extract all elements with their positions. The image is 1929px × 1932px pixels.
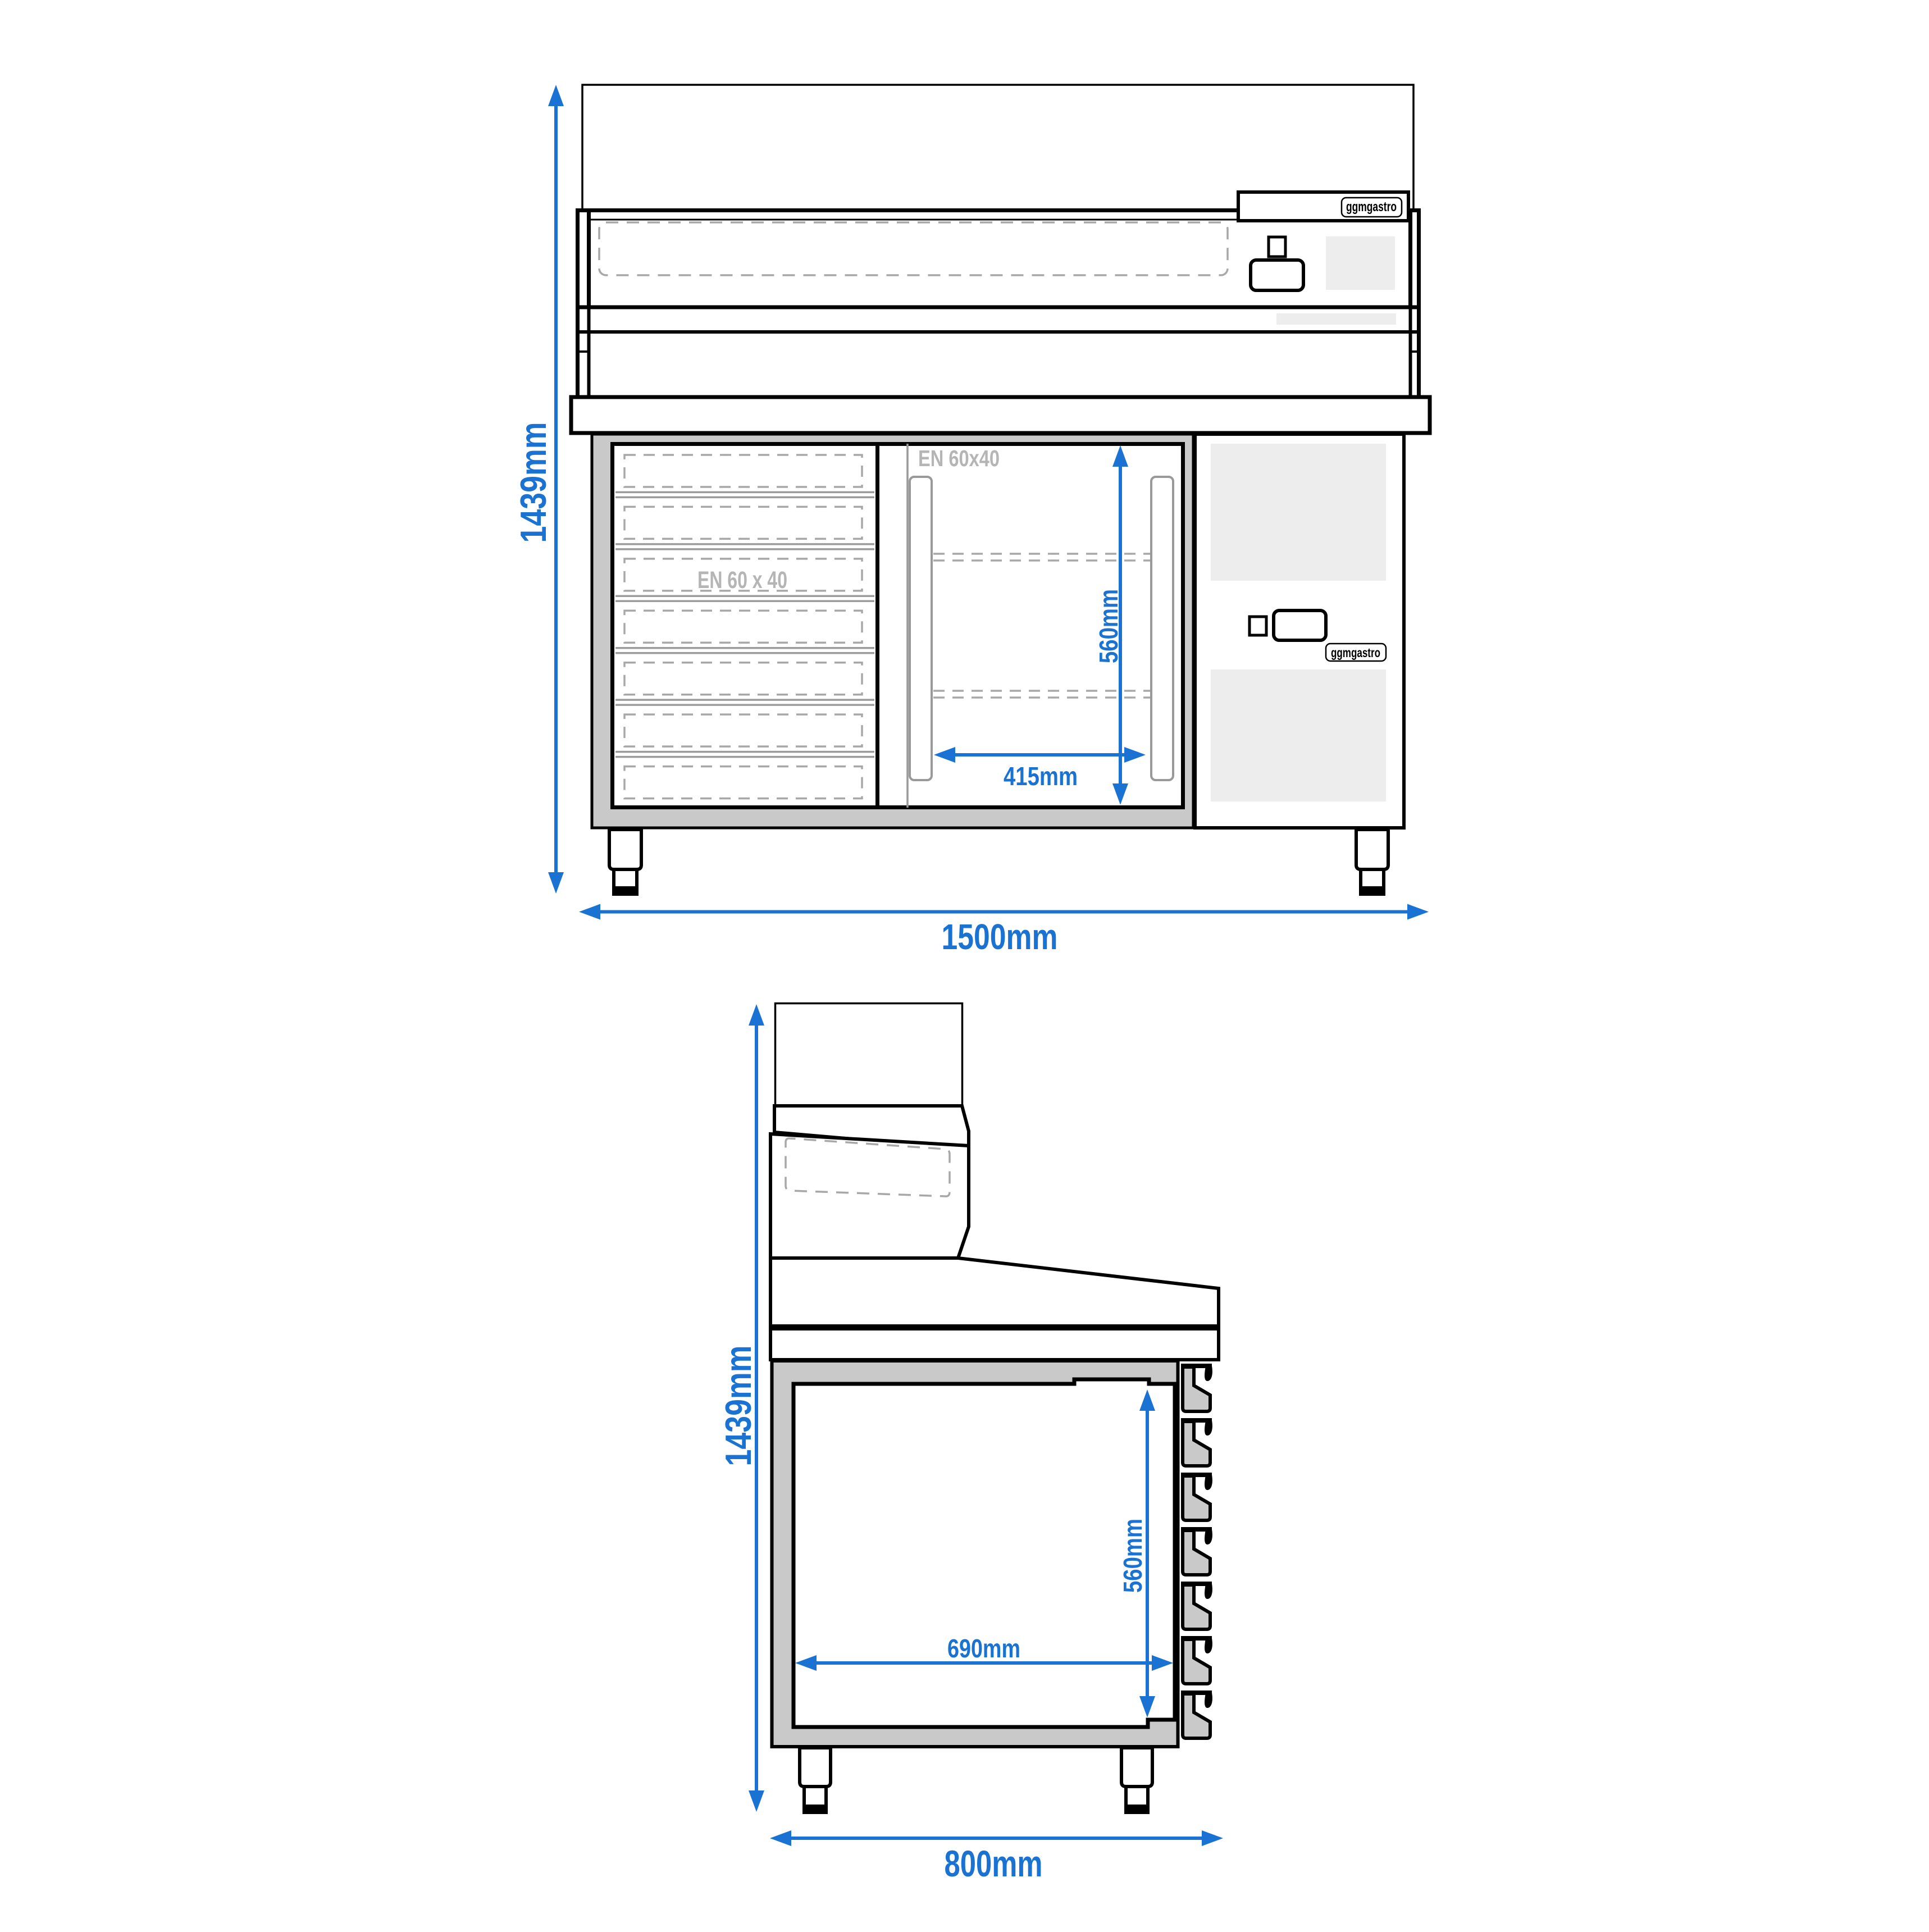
svg-text:560mm: 560mm <box>1094 589 1123 663</box>
svg-text:560mm: 560mm <box>1118 1519 1147 1593</box>
svg-text:1439mm: 1439mm <box>513 422 554 543</box>
svg-text:1500mm: 1500mm <box>942 917 1058 957</box>
svg-text:EN 60 x 40: EN 60 x 40 <box>697 567 787 594</box>
svg-text:EN 60x40: EN 60x40 <box>918 445 1000 471</box>
svg-text:690mm: 690mm <box>947 1634 1020 1663</box>
svg-text:415mm: 415mm <box>1004 762 1078 791</box>
svg-text:800mm: 800mm <box>945 1843 1043 1884</box>
svg-text:ggmgastro: ggmgastro <box>1346 199 1397 215</box>
svg-text:1439mm: 1439mm <box>718 1346 759 1466</box>
svg-text:ggmgastro: ggmgastro <box>1331 645 1380 660</box>
